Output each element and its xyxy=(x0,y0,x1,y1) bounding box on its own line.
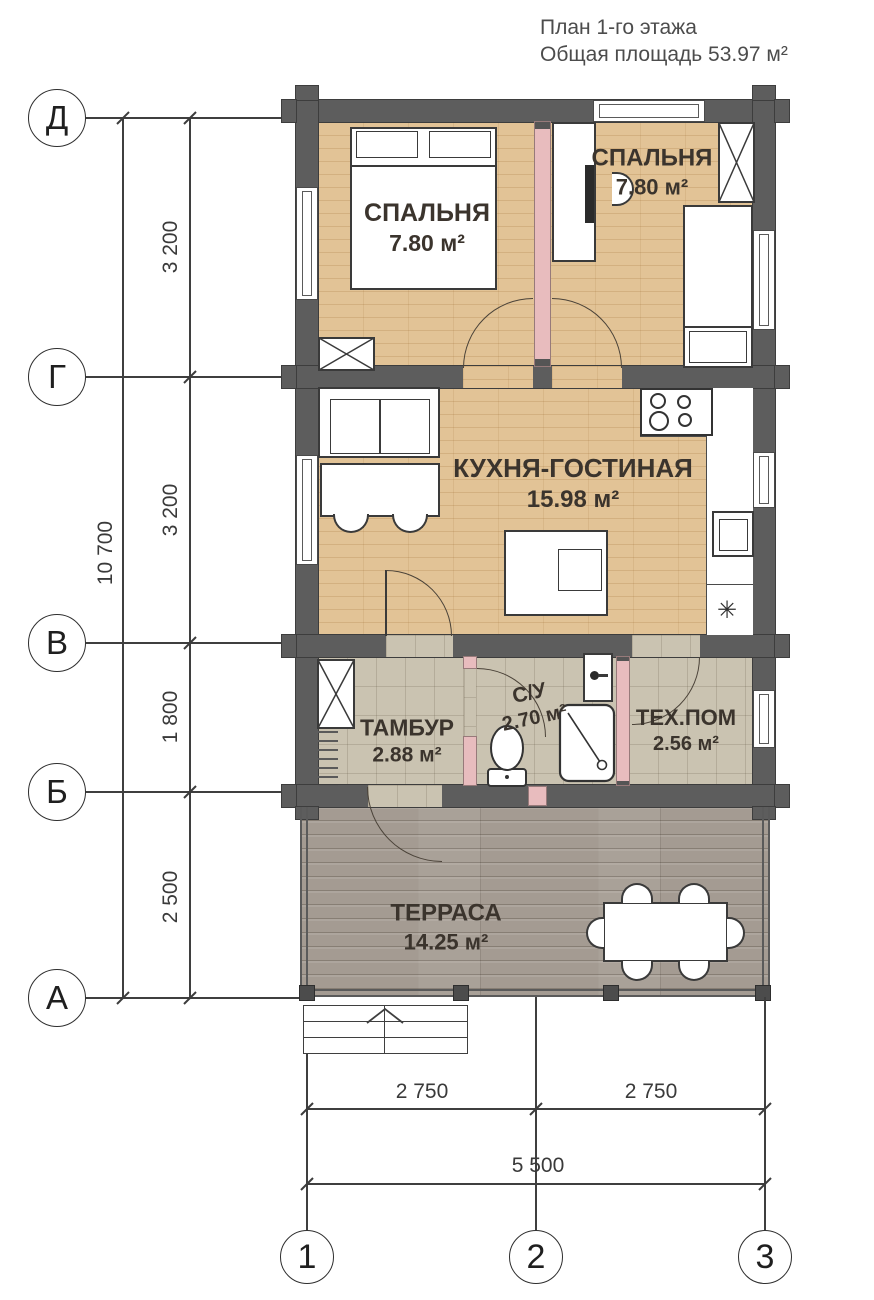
room-label-bedroom-left: СПАЛЬНЯ 7.80 м² xyxy=(364,198,490,258)
axis-row-label: Г xyxy=(48,358,66,396)
blanket-line xyxy=(683,326,753,328)
railing xyxy=(300,989,770,991)
partition-cap xyxy=(617,657,629,661)
axis-circle-v: В xyxy=(28,614,86,672)
floor-plan: План 1-го этажа Общая площадь 53.97 м² 1… xyxy=(0,0,874,1300)
log-stub xyxy=(753,86,775,100)
axis-row-label: Д xyxy=(46,99,68,137)
log-stub xyxy=(775,366,789,388)
partition-cap xyxy=(535,359,550,366)
window-tech-room xyxy=(753,690,775,748)
dim-label-seg-4: 2 500 xyxy=(159,871,183,924)
plan-title-line2: Общая площадь 53.97 м² xyxy=(540,41,788,68)
log-stub xyxy=(296,86,318,100)
doorway-bedroom-right xyxy=(552,366,622,388)
railing-post xyxy=(604,986,618,1000)
log-stub xyxy=(282,635,296,657)
step-line xyxy=(304,1037,467,1038)
railing xyxy=(306,807,308,997)
axis-leader-2 xyxy=(535,997,537,1230)
dim-line-segments-vertical xyxy=(189,118,191,998)
island-sink xyxy=(558,549,602,591)
blanket-line xyxy=(350,165,497,167)
axis-circle-d: Д xyxy=(28,89,86,147)
log-stub xyxy=(282,366,296,388)
axis-col-label: 1 xyxy=(298,1238,317,1277)
plan-title-line1: План 1-го этажа xyxy=(540,14,788,41)
log-stub xyxy=(775,100,789,122)
pillow xyxy=(689,331,747,363)
window-kitchen-left xyxy=(296,455,318,565)
dining-table xyxy=(320,463,440,517)
axis-leader-1 xyxy=(306,1053,308,1230)
window-bedroom-right-top xyxy=(593,100,705,122)
log-stub xyxy=(753,807,775,819)
doorway-kitchen-tech xyxy=(632,635,700,657)
room-label-terrace: ТЕРРАСА 14.25 м² xyxy=(390,898,501,956)
room-name: ТЕРРАСА xyxy=(390,898,501,928)
fridge-asterisk-icon: ✳ xyxy=(717,596,737,625)
room-area: 7.80 м² xyxy=(592,173,713,201)
dim-label-span-1: 2 750 xyxy=(396,1080,449,1104)
railing-post xyxy=(300,986,314,1000)
axis-circle-3: 3 xyxy=(738,1230,792,1284)
room-name: СПАЛЬНЯ xyxy=(592,143,713,173)
axis-leader-3 xyxy=(764,997,766,1230)
axis-row-label: Б xyxy=(46,773,68,811)
railing xyxy=(762,807,764,997)
log-stub xyxy=(775,635,789,657)
log-stub xyxy=(775,785,789,807)
partition-cap xyxy=(617,781,629,785)
counter-sink-basin xyxy=(719,519,748,551)
wardrobe xyxy=(317,659,355,729)
axis-col-label: 3 xyxy=(756,1238,775,1277)
railing-post xyxy=(756,986,770,1000)
partition-bathroom-tech xyxy=(617,657,629,785)
axis-circle-b: Б xyxy=(28,763,86,821)
room-name: СПАЛЬНЯ xyxy=(364,198,490,229)
dim-label-seg-1: 3 200 xyxy=(159,221,183,274)
room-label-tech-room: ТЕХ.ПОМ 2.56 м² xyxy=(636,704,736,757)
wardrobe xyxy=(318,337,375,371)
partition-infill-b-wall xyxy=(529,787,546,805)
dim-label-total-height: 10 700 xyxy=(94,521,118,585)
room-area: 2.56 м² xyxy=(636,731,736,756)
axis-circle-1: 1 xyxy=(280,1230,334,1284)
sofa-divider xyxy=(379,399,381,454)
axis-col-label: 2 xyxy=(527,1238,546,1277)
dim-line-total-vertical xyxy=(122,118,124,998)
room-label-kitchen-living: КУХНЯ-ГОСТИНАЯ 15.98 м² xyxy=(453,452,693,515)
wardrobe xyxy=(718,122,755,203)
partition-tambour-bathroom-bottom xyxy=(464,737,476,785)
doorway-tambour-bathroom xyxy=(464,668,476,737)
doorway-kitchen-tambour xyxy=(386,635,453,657)
axis-row-label: В xyxy=(46,624,68,662)
partition-bedrooms xyxy=(535,122,550,366)
steps-up-arrow-icon xyxy=(350,1007,420,1025)
dim-label-span-2: 2 750 xyxy=(625,1080,678,1104)
dim-label-seg-3: 1 800 xyxy=(159,691,183,744)
axis-row-label: А xyxy=(46,979,68,1017)
log-stub xyxy=(282,100,296,122)
window-bedroom-right-side xyxy=(753,230,775,330)
railing xyxy=(300,807,302,997)
dim-label-total-width: 5 500 xyxy=(512,1154,565,1178)
room-area: 14.25 м² xyxy=(390,928,501,956)
room-area: 7.80 м² xyxy=(364,229,490,258)
axis-circle-2: 2 xyxy=(509,1230,563,1284)
window-kitchen-right xyxy=(753,452,775,508)
pillow xyxy=(429,131,491,158)
wall-axis-v xyxy=(296,635,775,657)
dim-label-seg-2: 3 200 xyxy=(159,484,183,537)
plan-title: План 1-го этажа Общая площадь 53.97 м² xyxy=(540,14,788,68)
doorway-bedroom-left xyxy=(463,366,533,388)
window-bedroom-left xyxy=(296,187,318,300)
room-area: 15.98 м² xyxy=(453,484,693,514)
stove xyxy=(640,388,713,436)
room-name: КУХНЯ-ГОСТИНАЯ xyxy=(453,452,693,485)
pillow xyxy=(356,131,418,158)
terrace-table xyxy=(603,902,728,962)
shoe-rack xyxy=(318,731,338,786)
room-name: ТАМБУР xyxy=(360,714,454,743)
room-label-tambour: ТАМБУР 2.88 м² xyxy=(360,714,454,769)
railing-post xyxy=(454,986,468,1000)
entrance-steps xyxy=(303,1005,468,1054)
dim-line-total-horizontal xyxy=(307,1183,765,1185)
axis-circle-g: Г xyxy=(28,348,86,406)
partition-tambour-bathroom-top xyxy=(464,657,476,668)
partition-cap xyxy=(535,122,550,129)
room-label-bedroom-right: СПАЛЬНЯ 7.80 м² xyxy=(592,143,713,201)
faucet-stem xyxy=(598,674,608,677)
axis-line-a xyxy=(86,997,300,999)
room-name: ТЕХ.ПОМ xyxy=(636,704,736,732)
room-area: 2.88 м² xyxy=(360,742,454,768)
railing xyxy=(768,807,770,997)
axis-circle-a: А xyxy=(28,969,86,1027)
log-stub xyxy=(282,785,296,807)
